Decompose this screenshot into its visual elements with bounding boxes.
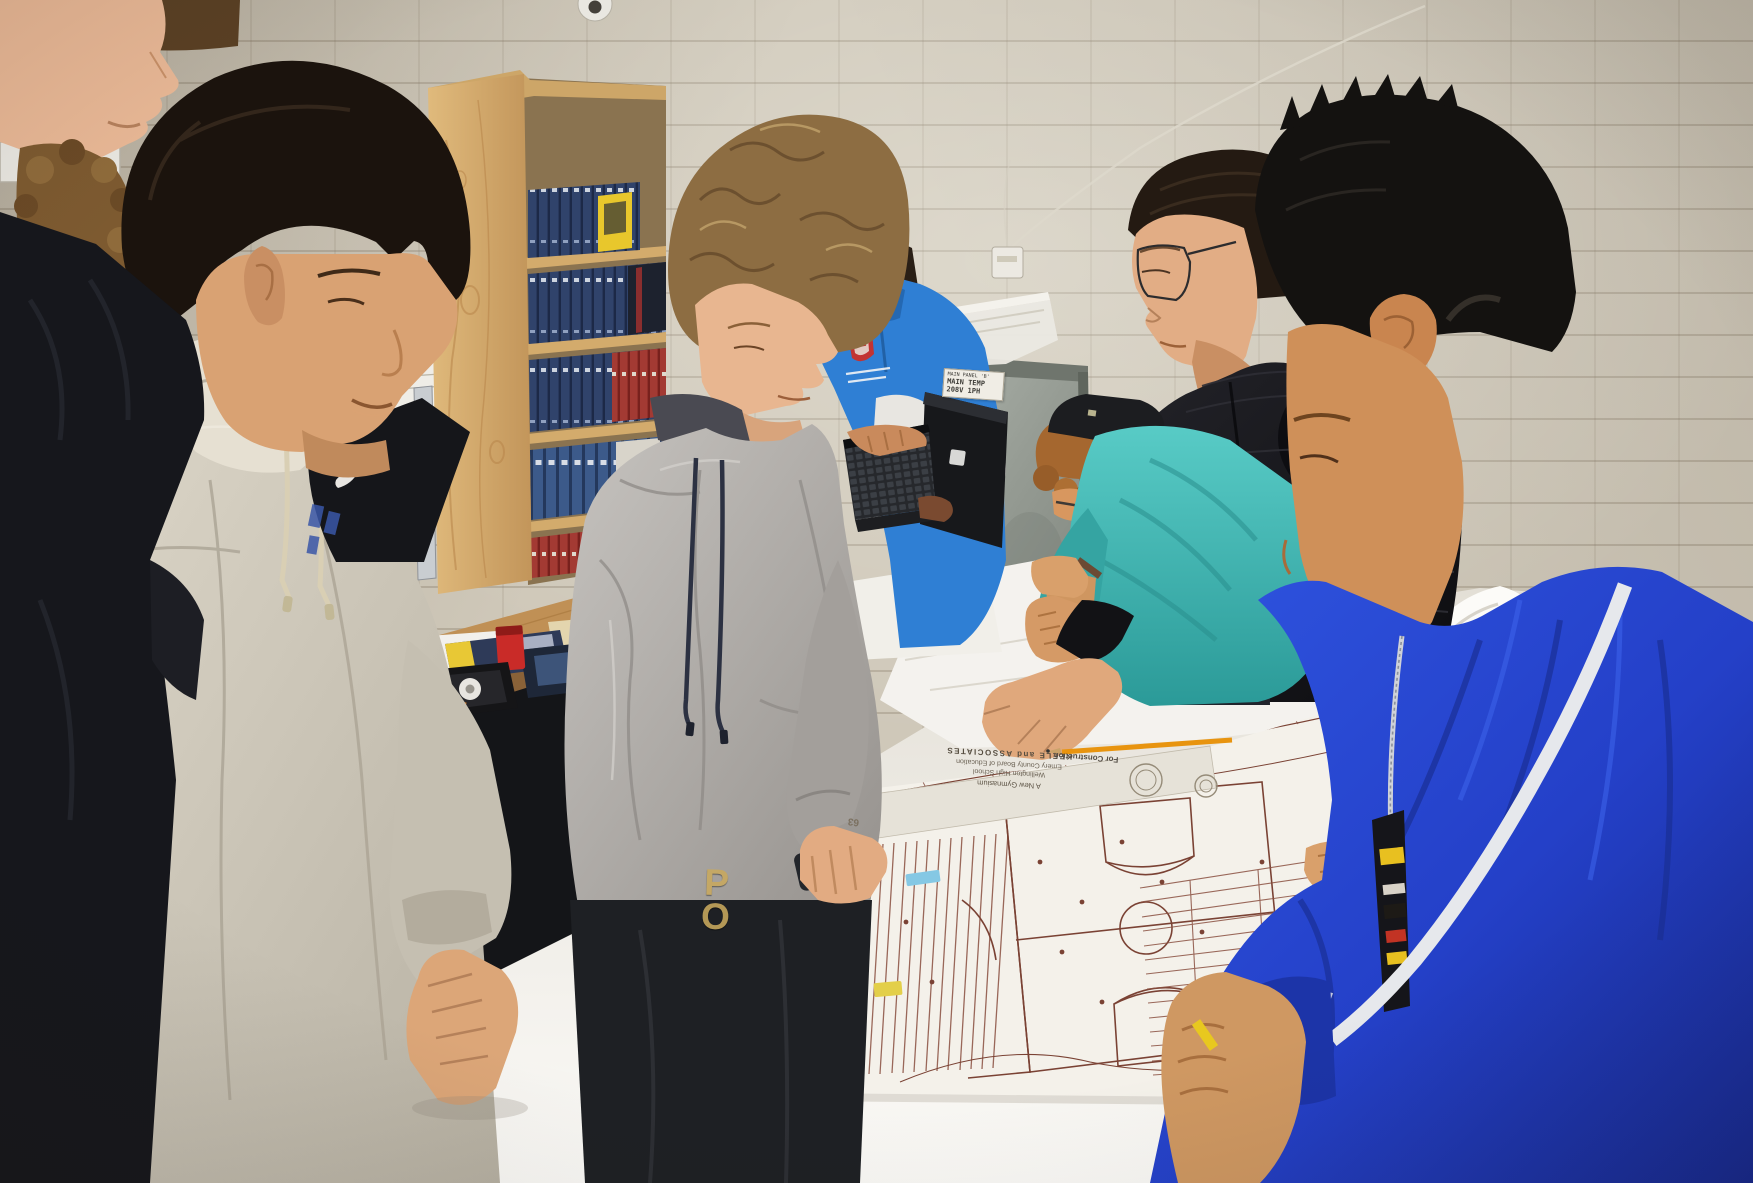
- sleeve-cuff: [402, 890, 492, 944]
- classroom-photo: MAIN PANEL 'B' MAIN TEMP 208V 1PH A New …: [0, 0, 1753, 1183]
- cap-tag: [1088, 409, 1097, 416]
- black-sweatpants: [570, 900, 872, 1183]
- scene-canvas: [0, 0, 1753, 1183]
- binder-row-2: [528, 262, 666, 344]
- security-camera: [578, 0, 612, 21]
- binder-row-1: [528, 182, 640, 258]
- yellow-highlight-mark: [873, 981, 902, 997]
- binder-row-3: [529, 348, 666, 432]
- fist-shadow: [412, 1096, 528, 1120]
- thermostat-box: [992, 247, 1023, 278]
- laptop-brand-logo: [949, 449, 966, 466]
